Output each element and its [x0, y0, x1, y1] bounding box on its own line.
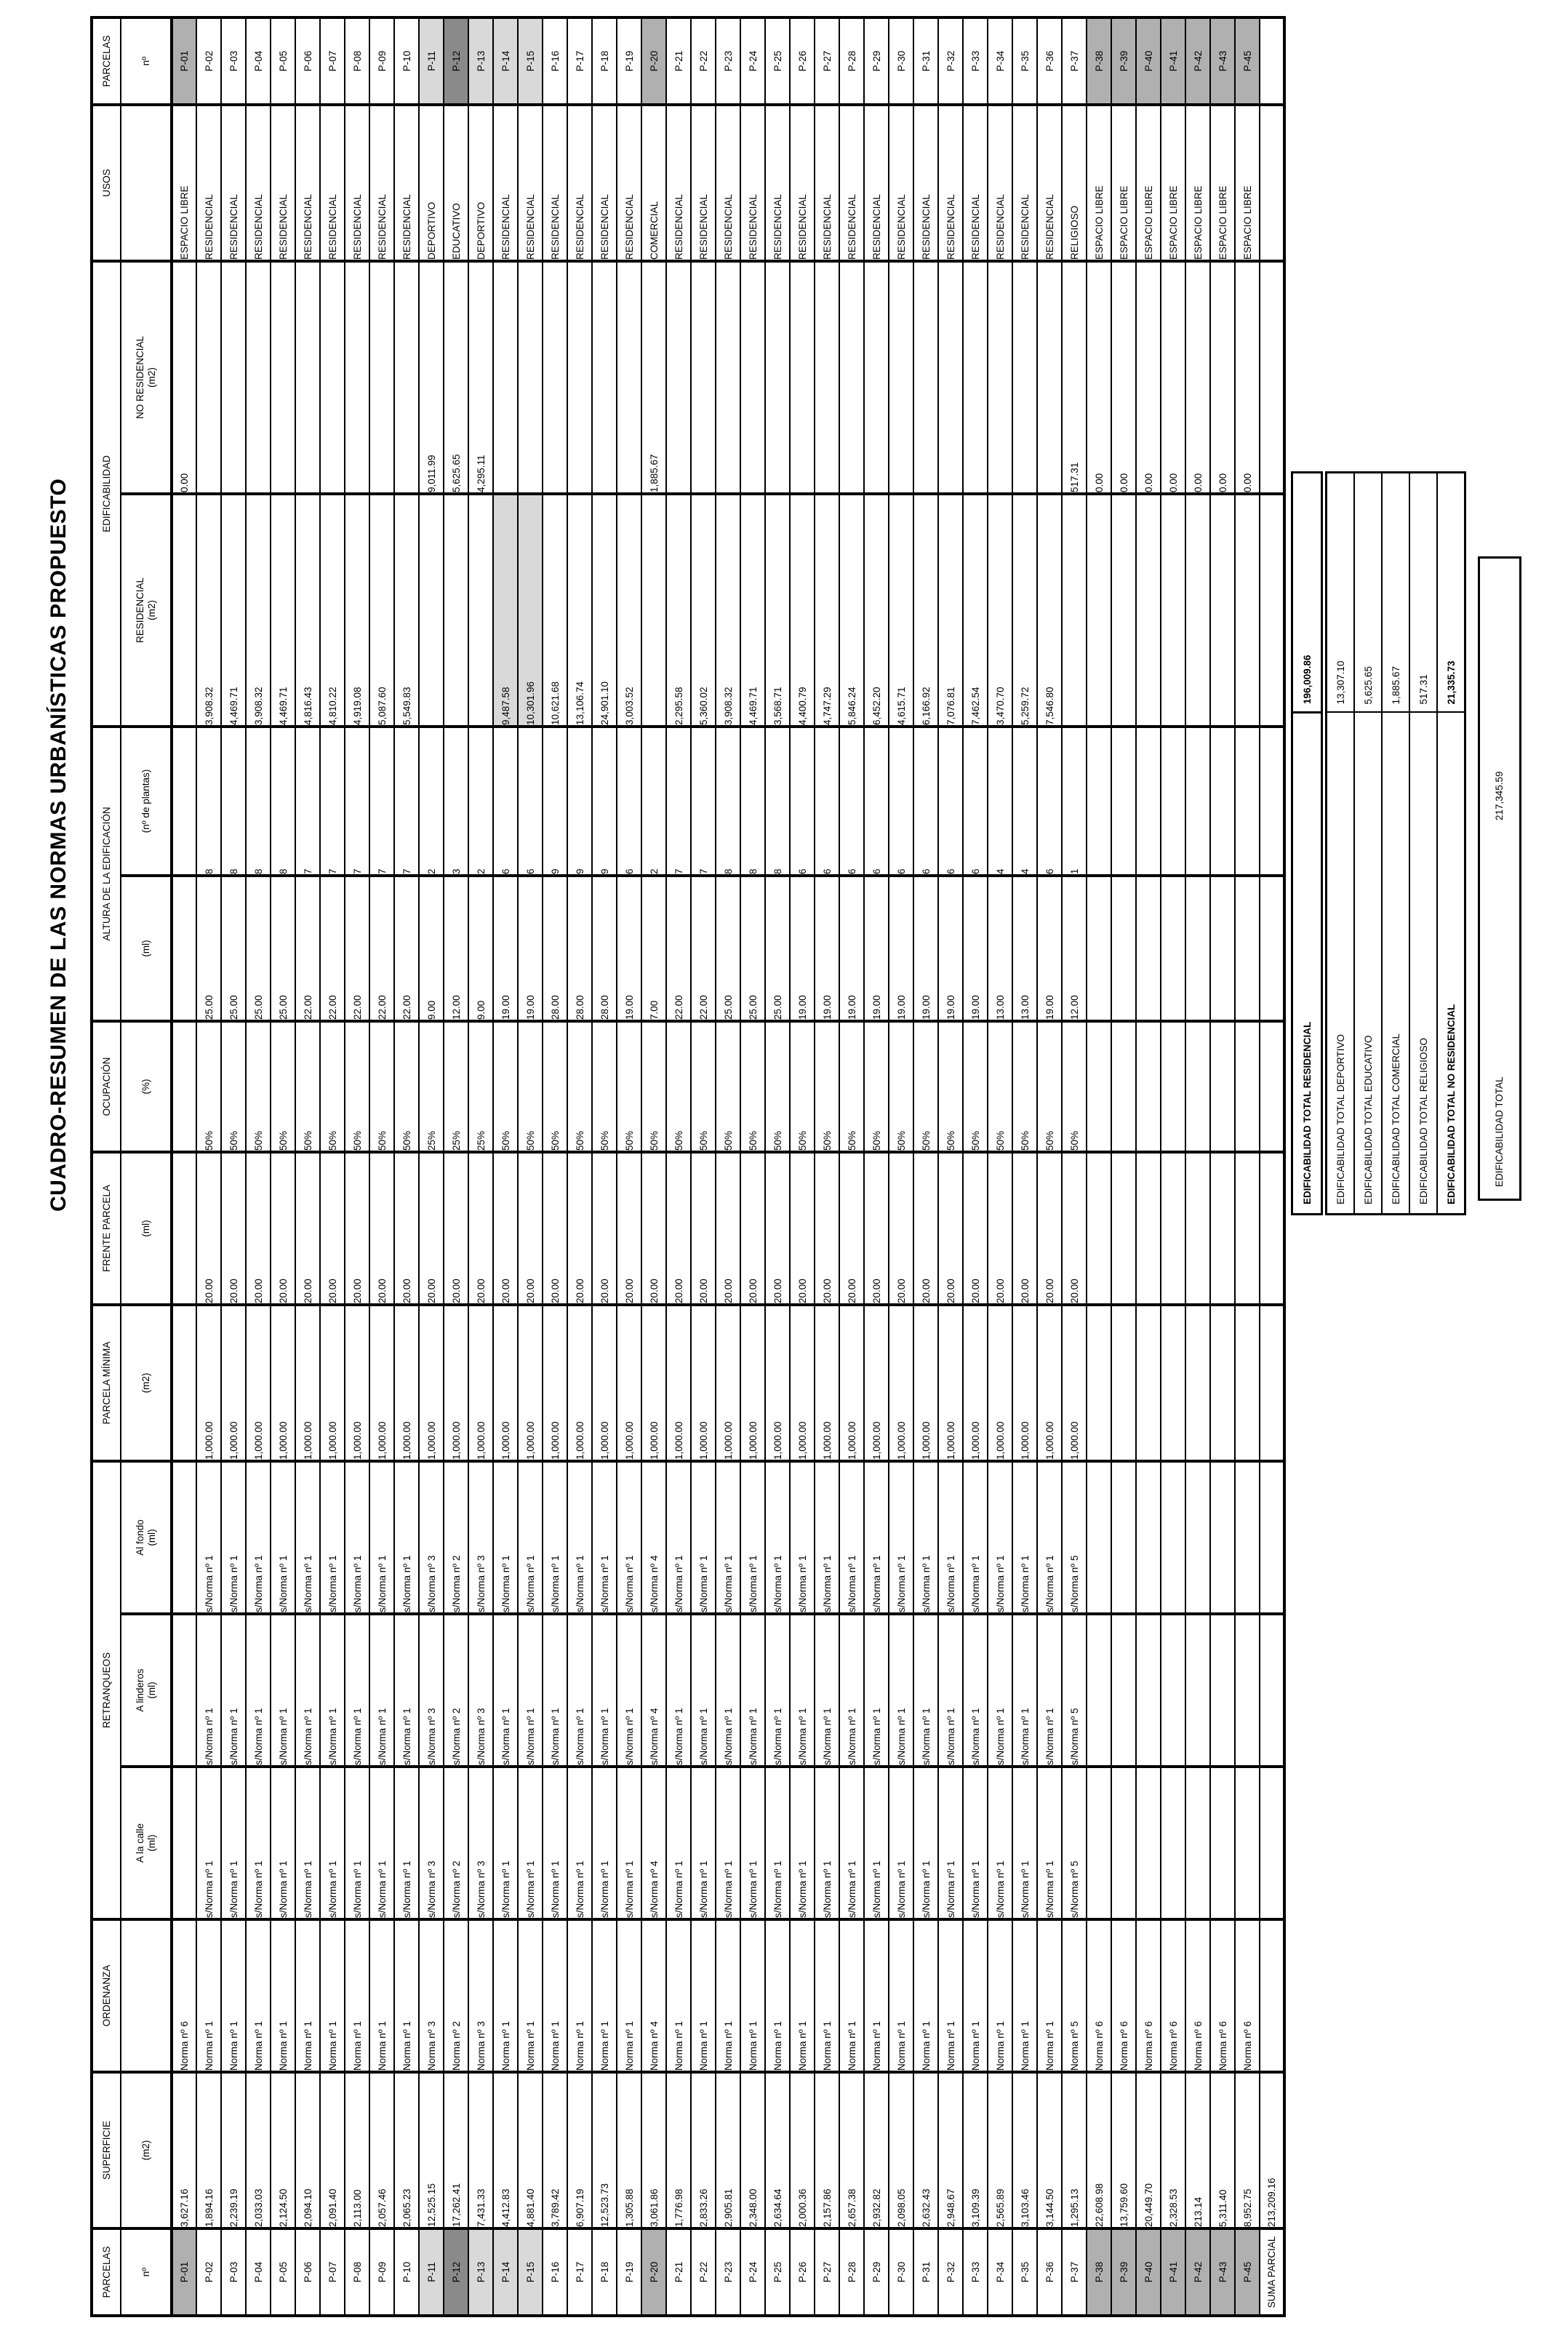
summary-block-label: EDIFICABILIDAD TOTAL NO RESIDENCIAL	[1437, 713, 1465, 1215]
cell-uso: RESIDENCIAL	[889, 105, 913, 261]
cell-rl	[1111, 1614, 1136, 1767]
cell-fp: 20.00	[320, 1152, 345, 1305]
cell-rf	[1235, 1461, 1260, 1614]
subheader-altura-ml: (ml)	[121, 876, 172, 1021]
header-retranqueos: RETRANQUEOS	[92, 1461, 121, 1919]
cell-uso: RESIDENCIAL	[221, 105, 246, 261]
cell-oc: 50%	[641, 1021, 666, 1152]
cell-no2: P-43	[1210, 17, 1235, 105]
cell-rc	[1210, 1767, 1235, 1919]
cell-ml: 22.00	[666, 876, 691, 1021]
summary-residencial-row: EDIFICABILIDAD TOTAL RESIDENCIAL 196,009…	[1292, 473, 1322, 1215]
cell-rc	[1087, 1767, 1111, 1919]
cell-nores	[369, 261, 394, 494]
summary-block-row: EDIFICABILIDAD TOTAL NO RESIDENCIAL21,33…	[1437, 473, 1465, 1215]
cell-no: P-27	[815, 2228, 839, 2316]
cell-ord: Norma nº 6	[1185, 1919, 1210, 2072]
cell-uso: RESIDENCIAL	[196, 105, 221, 261]
cell-oc: 25%	[444, 1021, 468, 1152]
cell-nores: 0.00	[1136, 261, 1161, 494]
cell-no: P-30	[889, 2228, 913, 2316]
cell-pl	[1111, 727, 1136, 876]
cell-ml: 19.00	[839, 876, 864, 1021]
cell-oc: 50%	[716, 1021, 740, 1152]
cell-ml: 12.00	[444, 876, 468, 1021]
cell-no2: P-23	[716, 17, 740, 105]
cell-rc: s/Norma nº 3	[468, 1767, 493, 1919]
cell-uso: EDUCATIVO	[444, 105, 468, 261]
table-row: P-302,098.05Norma nº 1s/Norma nº 1s/Norm…	[889, 17, 913, 2316]
cell-no: P-26	[790, 2228, 815, 2316]
cell-rc: s/Norma nº 1	[196, 1767, 221, 1919]
cell-rc: s/Norma nº 1	[963, 1767, 988, 1919]
cell-rf: s/Norma nº 1	[839, 1461, 864, 1614]
cell-pm	[1235, 1305, 1260, 1461]
cell-ord: Norma nº 1	[864, 1919, 889, 2072]
cell-no: P-34	[988, 2228, 1012, 2316]
cell-no2: P-41	[1161, 17, 1185, 105]
cell-no: P-45	[1235, 2228, 1260, 2316]
table-row: P-052,124.50Norma nº 1s/Norma nº 1s/Norm…	[271, 17, 295, 2316]
cell-nores	[221, 261, 246, 494]
cell-nores	[295, 261, 320, 494]
cell-res	[1087, 494, 1111, 727]
cell-no2: P-03	[221, 17, 246, 105]
cell-no2: P-06	[295, 17, 320, 105]
cell-rf: s/Norma nº 1	[790, 1461, 815, 1614]
cell-ml: 19.00	[617, 876, 641, 1021]
cell-pm: 1,000.00	[691, 1305, 716, 1461]
cell-res: 5,549.83	[394, 494, 419, 727]
cell-oc	[1111, 1021, 1136, 1152]
cell-nores	[666, 261, 691, 494]
cell-sup: 2,632.43	[913, 2072, 938, 2228]
cell-ord: Norma nº 1	[938, 1919, 963, 2072]
cell-rf: s/Norma nº 1	[938, 1461, 963, 1614]
cell-rc: s/Norma nº 1	[1012, 1767, 1037, 1919]
cell-pl: 2	[419, 727, 444, 876]
cell-fp: 20.00	[369, 1152, 394, 1305]
cell-no2: P-13	[468, 17, 493, 105]
cell-rl: s/Norma nº 1	[221, 1614, 246, 1767]
subheader-fondo-unit: (ml)	[146, 1463, 158, 1612]
cell-no: P-42	[1185, 2228, 1210, 2316]
cell-oc: 50%	[543, 1021, 567, 1152]
cell-pm	[1260, 1305, 1284, 1461]
cell-fp: 20.00	[295, 1152, 320, 1305]
cell-rf: s/Norma nº 1	[221, 1461, 246, 1614]
cell-rl: s/Norma nº 1	[839, 1614, 864, 1767]
table-row: P-092,057.46Norma nº 1s/Norma nº 1s/Norm…	[369, 17, 394, 2316]
cell-ord: Norma nº 1	[988, 1919, 1012, 2072]
cell-rc: s/Norma nº 1	[988, 1767, 1012, 1919]
cell-no: P-37	[1062, 2228, 1087, 2316]
cell-rf: s/Norma nº 1	[988, 1461, 1012, 1614]
cell-rc: s/Norma nº 1	[295, 1767, 320, 1919]
cell-uso: RELIGIOSO	[1062, 105, 1087, 261]
cell-sup: 2,157.86	[815, 2072, 839, 2228]
cell-pl: 6	[938, 727, 963, 876]
cell-oc	[1185, 1021, 1210, 1152]
cell-ml	[1235, 876, 1260, 1021]
cell-rc	[1235, 1767, 1260, 1919]
table-row: P-342,565.89Norma nº 1s/Norma nº 1s/Norm…	[988, 17, 1012, 2316]
cell-nores	[740, 261, 765, 494]
cell-ord	[1260, 1919, 1284, 2072]
table-body: P-013,627.16Norma nº 60.00ESPACIO LIBREP…	[172, 17, 1284, 2316]
cell-res: 6,166.92	[913, 494, 938, 727]
cell-oc: 50%	[666, 1021, 691, 1152]
cell-oc: 50%	[765, 1021, 790, 1152]
cell-rc: s/Norma nº 1	[617, 1767, 641, 1919]
cell-uso: RESIDENCIAL	[765, 105, 790, 261]
cell-ml: 22.00	[394, 876, 419, 1021]
cell-sup: 213.14	[1185, 2072, 1210, 2228]
cell-rf: s/Norma nº 1	[295, 1461, 320, 1614]
cell-ml: 28.00	[567, 876, 592, 1021]
cell-pm: 1,000.00	[518, 1305, 543, 1461]
cell-pl: 4	[1012, 727, 1037, 876]
cell-sup: 2,057.46	[369, 2072, 394, 2228]
cell-sup: 20,449.70	[1136, 2072, 1161, 2228]
cell-no: P-31	[913, 2228, 938, 2316]
cell-rc: s/Norma nº 1	[864, 1767, 889, 1919]
cell-uso: ESPACIO LIBRE	[1185, 105, 1210, 261]
cell-res: 4,919.08	[345, 494, 369, 727]
cell-no: P-33	[963, 2228, 988, 2316]
cell-res: 3,003.52	[617, 494, 641, 727]
cell-nores	[567, 261, 592, 494]
cell-fp: 20.00	[468, 1152, 493, 1305]
cell-res: 2,295.58	[666, 494, 691, 727]
cell-pl: 6	[815, 727, 839, 876]
cell-uso	[1260, 105, 1284, 261]
cell-oc: 50%	[196, 1021, 221, 1152]
cell-uso: RESIDENCIAL	[345, 105, 369, 261]
cell-fp: 20.00	[691, 1152, 716, 1305]
cell-sup: 2,932.82	[864, 2072, 889, 2228]
cell-rl: s/Norma nº 1	[790, 1614, 815, 1767]
cell-ml: 7.00	[641, 876, 666, 1021]
cell-sup: 1,894.16	[196, 2072, 221, 2228]
cell-pm: 1,000.00	[295, 1305, 320, 1461]
cell-no2: P-28	[839, 17, 864, 105]
cell-no2: P-36	[1037, 17, 1062, 105]
cell-rf: s/Norma nº 1	[666, 1461, 691, 1614]
cell-nores: 0.00	[1087, 261, 1111, 494]
page: { "title": "CUADRO-RESUMEN DE LAS NORMAS…	[0, 0, 1568, 2339]
cell-rc: s/Norma nº 1	[666, 1767, 691, 1919]
cell-fp: 20.00	[913, 1152, 938, 1305]
cell-no2: P-32	[938, 17, 963, 105]
cell-uso: RESIDENCIAL	[716, 105, 740, 261]
cell-fp: 20.00	[444, 1152, 468, 1305]
cell-nores	[790, 261, 815, 494]
cell-ml: 22.00	[369, 876, 394, 1021]
cell-res: 5,846.24	[839, 494, 864, 727]
cell-sup: 12,523.73	[592, 2072, 617, 2228]
cell-ord: Norma nº 1	[295, 1919, 320, 2072]
cell-ord: Norma nº 1	[518, 1919, 543, 2072]
cell-ord: Norma nº 1	[271, 1919, 295, 2072]
cell-rc: s/Norma nº 2	[444, 1767, 468, 1919]
cell-no: P-10	[394, 2228, 419, 2316]
table-row: P-3913,759.60Norma nº 60.00ESPACIO LIBRE…	[1111, 17, 1136, 2316]
table-row: P-203,061.86Norma nº 4s/Norma nº 4s/Norm…	[641, 17, 666, 2316]
table-row: P-062,094.10Norma nº 1s/Norma nº 1s/Norm…	[295, 17, 320, 2316]
cell-uso: ESPACIO LIBRE	[1235, 105, 1260, 261]
cell-no2: P-34	[988, 17, 1012, 105]
cell-res: 4,810.22	[320, 494, 345, 727]
cell-ord: Norma nº 1	[691, 1919, 716, 2072]
cell-rc	[1161, 1767, 1185, 1919]
cell-no2: P-35	[1012, 17, 1037, 105]
cell-fp	[1210, 1152, 1235, 1305]
cell-uso: RESIDENCIAL	[567, 105, 592, 261]
cell-res	[641, 494, 666, 727]
cell-fp	[1235, 1152, 1260, 1305]
cell-uso: ESPACIO LIBRE	[1087, 105, 1111, 261]
cell-pl	[1161, 727, 1185, 876]
cell-rf: s/Norma nº 1	[889, 1461, 913, 1614]
cell-rl: s/Norma nº 1	[1037, 1614, 1062, 1767]
cell-pl: 6	[864, 727, 889, 876]
cell-rf: s/Norma nº 1	[567, 1461, 592, 1614]
cell-nores: 0.00	[1235, 261, 1260, 494]
cell-no2: P-05	[271, 17, 295, 105]
cell-pl: 8	[765, 727, 790, 876]
cell-sup: 4,412.83	[493, 2072, 518, 2228]
cell-pm: 1,000.00	[369, 1305, 394, 1461]
cell-rc: s/Norma nº 1	[938, 1767, 963, 1919]
cell-pl	[1235, 727, 1260, 876]
cell-oc: 25%	[419, 1021, 444, 1152]
cell-rc: s/Norma nº 1	[518, 1767, 543, 1919]
cell-pl: 6	[913, 727, 938, 876]
cell-rc: s/Norma nº 1	[320, 1767, 345, 1919]
header-ordenanza: ORDENANZA	[92, 1919, 121, 2072]
cell-fp: 20.00	[271, 1152, 295, 1305]
table-row: P-191,305.88Norma nº 1s/Norma nº 1s/Norm…	[617, 17, 641, 2316]
cell-pm: 1,000.00	[790, 1305, 815, 1461]
cell-sup: 2,000.36	[790, 2072, 815, 2228]
cell-rf: s/Norma nº 2	[444, 1461, 468, 1614]
cell-oc: 50%	[493, 1021, 518, 1152]
cell-no2: P-25	[765, 17, 790, 105]
cell-uso: RESIDENCIAL	[518, 105, 543, 261]
cell-pm: 1,000.00	[394, 1305, 419, 1461]
cell-uso: COMERCIAL	[641, 105, 666, 261]
cell-pm	[1111, 1305, 1136, 1461]
summary-block-value: 13,307.10	[1327, 473, 1355, 713]
cell-sup: 17,262.41	[444, 2072, 468, 2228]
cell-pl: 6	[518, 727, 543, 876]
cell-ml: 28.00	[543, 876, 567, 1021]
cell-rf	[1111, 1461, 1136, 1614]
cell-rf: s/Norma nº 1	[196, 1461, 221, 1614]
cell-fp: 20.00	[815, 1152, 839, 1305]
summary-block-row: EDIFICABILIDAD TOTAL COMERCIAL1,885.67	[1382, 473, 1409, 1215]
cell-res: 4,816.43	[295, 494, 320, 727]
subheader-residencial-unit: (m2)	[146, 495, 158, 725]
cell-pl: 9	[543, 727, 567, 876]
cell-rc: s/Norma nº 1	[592, 1767, 617, 1919]
cell-ord: Norma nº 6	[1161, 1919, 1185, 2072]
cell-sup: 2,634.64	[765, 2072, 790, 2228]
cell-ord: Norma nº 6	[1235, 1919, 1260, 2072]
cell-no: P-11	[419, 2228, 444, 2316]
cell-pl: 8	[196, 727, 221, 876]
cell-rf: s/Norma nº 1	[864, 1461, 889, 1614]
cell-res	[1260, 494, 1284, 727]
cell-sup: 13,759.60	[1111, 2072, 1136, 2228]
cell-pm: 1,000.00	[938, 1305, 963, 1461]
cell-no: P-06	[295, 2228, 320, 2316]
cell-oc: 50%	[1062, 1021, 1087, 1152]
cell-res: 9,487.58	[493, 494, 518, 727]
cell-uso: RESIDENCIAL	[1037, 105, 1062, 261]
summary-block-value: 1,885.67	[1382, 473, 1409, 713]
cell-nores	[864, 261, 889, 494]
table-row: P-292,932.82Norma nº 1s/Norma nº 1s/Norm…	[864, 17, 889, 2316]
cell-rf: s/Norma nº 1	[815, 1461, 839, 1614]
cell-oc	[1161, 1021, 1185, 1152]
cell-rc: s/Norma nº 4	[641, 1767, 666, 1919]
cell-rl: s/Norma nº 1	[518, 1614, 543, 1767]
cell-fp: 20.00	[864, 1152, 889, 1305]
cell-uso: RESIDENCIAL	[1012, 105, 1037, 261]
cell-rf: s/Norma nº 3	[468, 1461, 493, 1614]
subheader-linderos: A linderos(ml)	[121, 1614, 172, 1767]
cell-no2: P-07	[320, 17, 345, 105]
cell-pm	[1185, 1305, 1210, 1461]
cell-rf: s/Norma nº 1	[369, 1461, 394, 1614]
cell-res: 4,615.71	[889, 494, 913, 727]
cell-rf: s/Norma nº 1	[345, 1461, 369, 1614]
cell-pl: 4	[988, 727, 1012, 876]
cell-no2: P-37	[1062, 17, 1087, 105]
cell-ord: Norma nº 1	[666, 1919, 691, 2072]
cell-pl: 8	[716, 727, 740, 876]
cell-no: P-19	[617, 2228, 641, 2316]
cell-fp: 20.00	[543, 1152, 567, 1305]
cell-no: P-35	[1012, 2228, 1037, 2316]
cell-sup: 3,061.86	[641, 2072, 666, 2228]
cell-res: 3,908.32	[716, 494, 740, 727]
cell-fp: 20.00	[641, 1152, 666, 1305]
cell-res: 4,469.71	[221, 494, 246, 727]
cell-sup: 2,905.81	[716, 2072, 740, 2228]
cell-no: P-05	[271, 2228, 295, 2316]
cell-res: 10,621.68	[543, 494, 567, 727]
document-sheet: CUADRO-RESUMEN DE LAS NORMAS URBANÍSTICA…	[0, 0, 1568, 2339]
cell-sup: 1,305.88	[617, 2072, 641, 2228]
table-row: P-032,239.19Norma nº 1s/Norma nº 1s/Norm…	[221, 17, 246, 2316]
cell-pl	[1087, 727, 1111, 876]
cell-ord: Norma nº 3	[468, 1919, 493, 2072]
cell-oc: 50%	[864, 1021, 889, 1152]
cell-pl: 2	[468, 727, 493, 876]
cell-pm: 1,000.00	[815, 1305, 839, 1461]
cell-rl: s/Norma nº 1	[617, 1614, 641, 1767]
cell-rc: s/Norma nº 1	[345, 1767, 369, 1919]
cell-nores	[246, 261, 271, 494]
cell-nores	[543, 261, 567, 494]
cell-no2: P-02	[196, 17, 221, 105]
cell-rl: s/Norma nº 1	[592, 1614, 617, 1767]
cell-rc: s/Norma nº 3	[419, 1767, 444, 1919]
cell-res: 7,076.81	[938, 494, 963, 727]
cell-no: P-14	[493, 2228, 518, 2316]
cell-no: P-01	[172, 2228, 196, 2316]
cell-rf: s/Norma nº 1	[617, 1461, 641, 1614]
cell-fp: 20.00	[419, 1152, 444, 1305]
cell-no: P-24	[740, 2228, 765, 2316]
subheader-frente-ml: (ml)	[121, 1152, 172, 1305]
cell-ml: 22.00	[295, 876, 320, 1021]
summary-block-label: EDIFICABILIDAD TOTAL RELIGIOSO	[1409, 713, 1437, 1215]
cell-res	[172, 494, 196, 727]
cell-uso: RESIDENCIAL	[913, 105, 938, 261]
cell-no2: P-33	[963, 17, 988, 105]
cell-rf: s/Norma nº 1	[394, 1461, 419, 1614]
cell-no2: P-31	[913, 17, 938, 105]
table-row: P-363,144.50Norma nº 1s/Norma nº 1s/Norm…	[1037, 17, 1062, 2316]
cell-rc: s/Norma nº 1	[543, 1767, 567, 1919]
cell-uso: RESIDENCIAL	[839, 105, 864, 261]
cell-pm: 1,000.00	[1012, 1305, 1037, 1461]
cell-oc	[1136, 1021, 1161, 1152]
cell-no: P-03	[221, 2228, 246, 2316]
cell-oc: 50%	[320, 1021, 345, 1152]
cell-nores: 0.00	[1161, 261, 1185, 494]
cell-ml: 19.00	[889, 876, 913, 1021]
cell-ml	[1210, 876, 1235, 1021]
header-ocupacion: OCUPACIÓN	[92, 1021, 121, 1152]
cell-fp: 20.00	[1012, 1152, 1037, 1305]
cell-rl: s/Norma nº 1	[567, 1614, 592, 1767]
cell-nores: 9,011.99	[419, 261, 444, 494]
cell-ml: 25.00	[716, 876, 740, 1021]
cell-rl	[1087, 1614, 1111, 1767]
cell-ml: 19.00	[938, 876, 963, 1021]
cell-fp	[1136, 1152, 1161, 1305]
cell-rf: s/Norma nº 1	[963, 1461, 988, 1614]
cell-sup: 1,776.98	[666, 2072, 691, 2228]
cell-fp: 20.00	[493, 1152, 518, 1305]
cell-no: P-15	[518, 2228, 543, 2316]
cell-res	[1185, 494, 1210, 727]
cell-ml: 19.00	[493, 876, 518, 1021]
cell-rl: s/Norma nº 3	[468, 1614, 493, 1767]
subheader-calle-unit: (ml)	[146, 1768, 158, 1918]
cell-uso: RESIDENCIAL	[271, 105, 295, 261]
cell-oc: 25%	[468, 1021, 493, 1152]
cell-rl: s/Norma nº 1	[740, 1614, 765, 1767]
cell-ord: Norma nº 1	[815, 1919, 839, 2072]
cell-ml: 19.00	[963, 876, 988, 1021]
cell-ml: 22.00	[345, 876, 369, 1021]
cell-rf: s/Norma nº 1	[740, 1461, 765, 1614]
header-superficie: SUPERFICIE	[92, 2072, 121, 2228]
cell-rc: s/Norma nº 1	[716, 1767, 740, 1919]
cell-pm	[172, 1305, 196, 1461]
cell-rc: s/Norma nº 1	[369, 1767, 394, 1919]
cell-rf: s/Norma nº 1	[518, 1461, 543, 1614]
cell-no: SUMA PARCIAL	[1260, 2228, 1284, 2316]
cell-sup: 22,608.98	[1087, 2072, 1111, 2228]
header-altura: ALTURA DE LA EDIFICACIÓN	[92, 727, 121, 1021]
